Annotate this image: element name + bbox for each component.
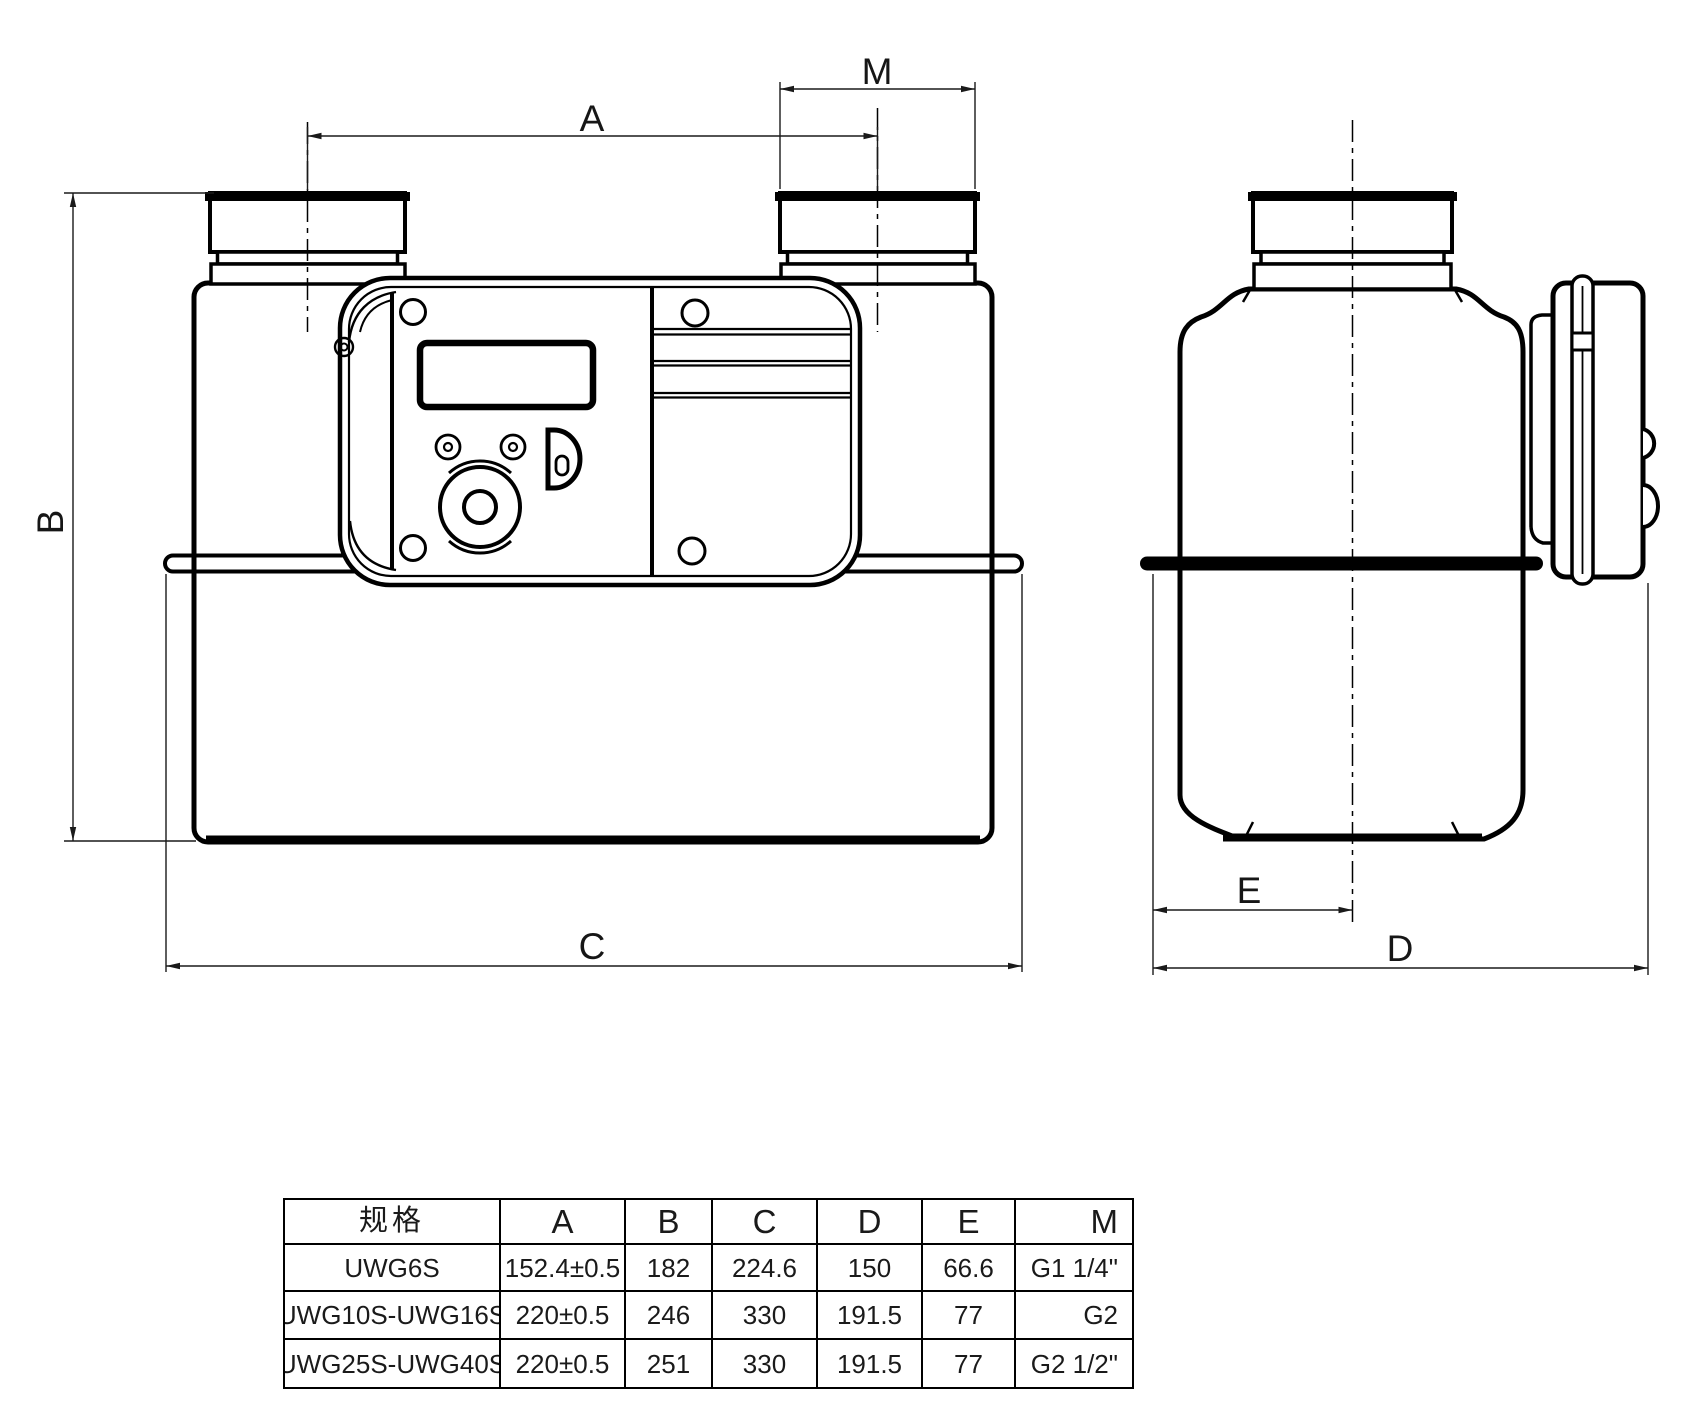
header-cell-b: B xyxy=(626,1200,713,1245)
label-e: E xyxy=(1237,870,1262,911)
label-b: B xyxy=(30,510,71,535)
box-bump-small xyxy=(1643,429,1654,458)
table-cell: 182 xyxy=(626,1245,713,1292)
side-view xyxy=(1147,120,1658,922)
table-cell: 251 xyxy=(626,1340,713,1387)
table-cell: 66.6 xyxy=(923,1245,1016,1292)
label-c: C xyxy=(579,926,606,967)
table-cell: 246 xyxy=(626,1292,713,1340)
table-cell: 150 xyxy=(818,1245,923,1292)
label-a: A xyxy=(580,98,605,139)
table-cell: 330 xyxy=(713,1292,818,1340)
label-d: D xyxy=(1387,928,1414,969)
table-cell: 330 xyxy=(713,1340,818,1387)
table-cell: UWG6S xyxy=(285,1245,501,1292)
table-cell: 77 xyxy=(923,1292,1016,1340)
table-cell: 220±0.5 xyxy=(501,1340,626,1387)
table-cell: G2 1/2" xyxy=(1016,1340,1132,1387)
table-cell: 191.5 xyxy=(818,1292,923,1340)
header-cell-a: A xyxy=(501,1200,626,1245)
table-cell: 152.4±0.5 xyxy=(501,1245,626,1292)
header-cell-d: D xyxy=(818,1200,923,1245)
header-cell-spec: 规格 xyxy=(285,1200,501,1245)
display-module xyxy=(335,278,860,585)
optical-port xyxy=(548,430,580,488)
lcd-window xyxy=(420,343,593,407)
table-cell: G2 xyxy=(1016,1292,1132,1340)
front-view xyxy=(165,108,1022,842)
header-cell-e: E xyxy=(923,1200,1016,1245)
header-cell-m: M xyxy=(1016,1200,1132,1245)
table-cell: UWG25S-UWG40S xyxy=(285,1340,501,1387)
table-cell: G1 1/4" xyxy=(1016,1245,1132,1292)
technical-drawing-page: M A B C E D 规格 A B C D E M UWG6S 152.4±0… xyxy=(0,0,1685,1412)
table-cell: 77 xyxy=(923,1340,1016,1387)
header-cell-c: C xyxy=(713,1200,818,1245)
table-cell: UWG10S-UWG16S xyxy=(285,1292,501,1340)
box-bump-large xyxy=(1643,485,1658,527)
table-cell: 224.6 xyxy=(713,1245,818,1292)
table-cell: 191.5 xyxy=(818,1340,923,1387)
terminal-box xyxy=(1553,276,1658,584)
hinge-clasp xyxy=(1572,333,1593,350)
label-m: M xyxy=(862,51,893,92)
spec-table: 规格 A B C D E M UWG6S 152.4±0.5 182 224.6… xyxy=(283,1198,1134,1389)
table-cell: 220±0.5 xyxy=(501,1292,626,1340)
